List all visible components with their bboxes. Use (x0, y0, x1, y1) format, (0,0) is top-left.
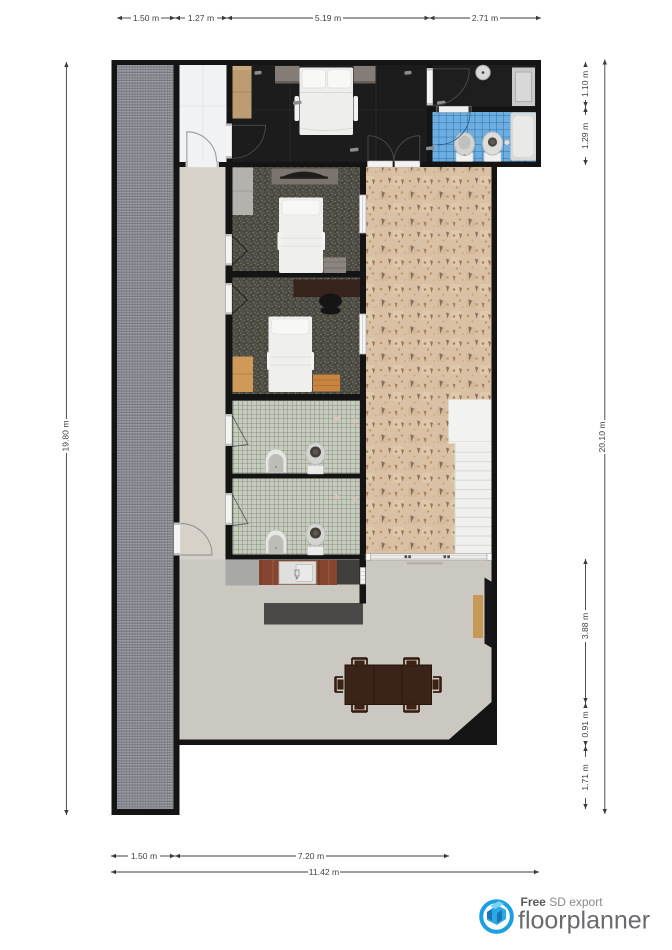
svg-text:19.80 m: 19.80 m (61, 420, 71, 451)
svg-text:2.71 m: 2.71 m (472, 13, 498, 23)
svg-text:11.42 m: 11.42 m (309, 867, 339, 877)
svg-text:1.71 m: 1.71 m (580, 764, 590, 790)
svg-text:7.20 m: 7.20 m (298, 851, 324, 861)
svg-text:0.91 m: 0.91 m (580, 711, 590, 737)
svg-text:1.50 m: 1.50 m (131, 851, 157, 861)
svg-text:5.19 m: 5.19 m (315, 13, 341, 23)
svg-text:1.27 m: 1.27 m (188, 13, 214, 23)
svg-text:floorplanner: floorplanner (518, 907, 650, 935)
svg-text:1.10 m: 1.10 m (580, 71, 590, 97)
svg-text:20.10 m: 20.10 m (597, 421, 607, 452)
svg-text:3.88 m: 3.88 m (580, 613, 590, 639)
svg-text:1.50 m: 1.50 m (133, 13, 159, 23)
svg-text:1.29 m: 1.29 m (580, 123, 590, 149)
